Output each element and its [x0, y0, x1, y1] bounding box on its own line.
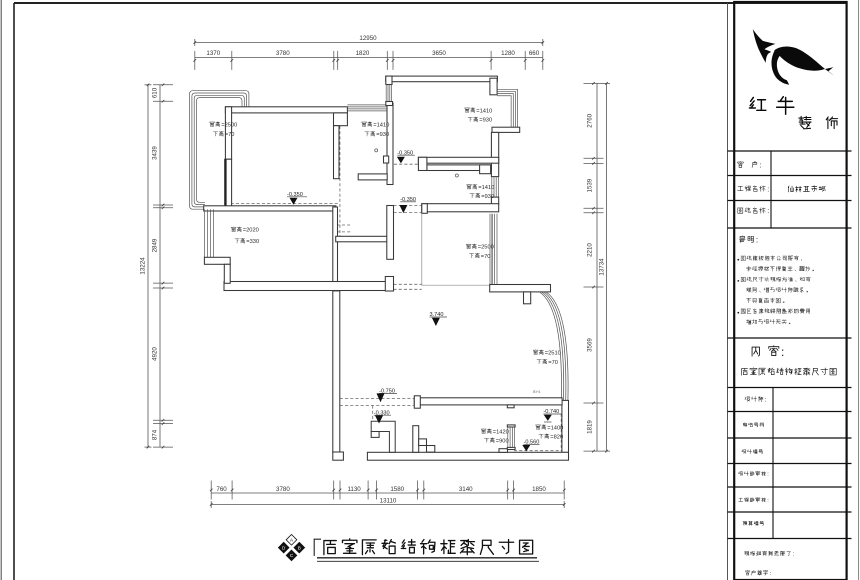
svg-text:3650: 3650 — [432, 50, 446, 57]
svg-text::: : — [767, 498, 769, 504]
svg-text:=1400: =1400 — [547, 425, 563, 431]
svg-text:13110: 13110 — [380, 498, 397, 505]
svg-text:=1410: =1410 — [476, 108, 492, 114]
svg-text::: : — [781, 345, 784, 359]
svg-text:=1410: =1410 — [478, 185, 494, 191]
svg-text:=930: =930 — [479, 118, 492, 124]
svg-text:3780: 3780 — [276, 50, 290, 57]
svg-text::: : — [767, 472, 769, 478]
svg-text:1850: 1850 — [532, 486, 546, 493]
svg-text:=2500: =2500 — [221, 123, 237, 129]
svg-text:=70: =70 — [225, 132, 235, 138]
svg-text:760: 760 — [216, 486, 227, 493]
svg-text:=2510: =2510 — [545, 351, 561, 357]
svg-text:610: 610 — [152, 87, 159, 98]
svg-text:=1420: =1420 — [493, 430, 509, 436]
svg-text:-0.560: -0.560 — [524, 440, 540, 446]
svg-text:=930: =930 — [481, 194, 494, 200]
svg-text:=330: =330 — [246, 239, 259, 245]
svg-text:1539: 1539 — [587, 178, 594, 192]
svg-text:=1410: =1410 — [373, 123, 389, 129]
svg-text:2210: 2210 — [587, 243, 594, 257]
svg-text:2849: 2849 — [152, 238, 159, 252]
svg-text:=2500: =2500 — [478, 245, 494, 251]
svg-text:1820: 1820 — [356, 50, 370, 57]
svg-text:1819: 1819 — [587, 420, 594, 434]
svg-text::: : — [765, 397, 767, 404]
svg-text:3569: 3569 — [587, 338, 594, 352]
svg-text:=930: =930 — [376, 132, 389, 138]
svg-text:1370: 1370 — [206, 50, 220, 57]
svg-text:3780: 3780 — [276, 486, 290, 493]
svg-text:3439: 3439 — [152, 146, 159, 160]
svg-text:B: B — [298, 545, 301, 550]
svg-text:660: 660 — [529, 50, 540, 57]
svg-text:BY4: BY4 — [533, 390, 540, 394]
svg-text::: : — [760, 160, 762, 169]
svg-text:=70: =70 — [481, 254, 491, 260]
svg-text:=70: =70 — [548, 360, 558, 366]
svg-text:3140: 3140 — [459, 486, 473, 493]
svg-text::: : — [767, 207, 769, 215]
svg-text:4920: 4920 — [152, 347, 159, 361]
svg-text:2760: 2760 — [587, 113, 594, 127]
svg-text:=820: =820 — [550, 435, 563, 441]
svg-text:=900: =900 — [496, 439, 509, 445]
svg-text:13734: 13734 — [599, 258, 606, 276]
svg-text::: : — [767, 185, 769, 193]
svg-text:13224: 13224 — [140, 257, 147, 275]
svg-text:12950: 12950 — [359, 35, 377, 42]
svg-text::: : — [756, 235, 758, 244]
svg-text:=2020: =2020 — [243, 228, 259, 234]
svg-text:1130: 1130 — [347, 486, 361, 493]
svg-text:1580: 1580 — [390, 486, 404, 493]
svg-text:1280: 1280 — [501, 50, 515, 57]
svg-text:874: 874 — [152, 429, 159, 440]
